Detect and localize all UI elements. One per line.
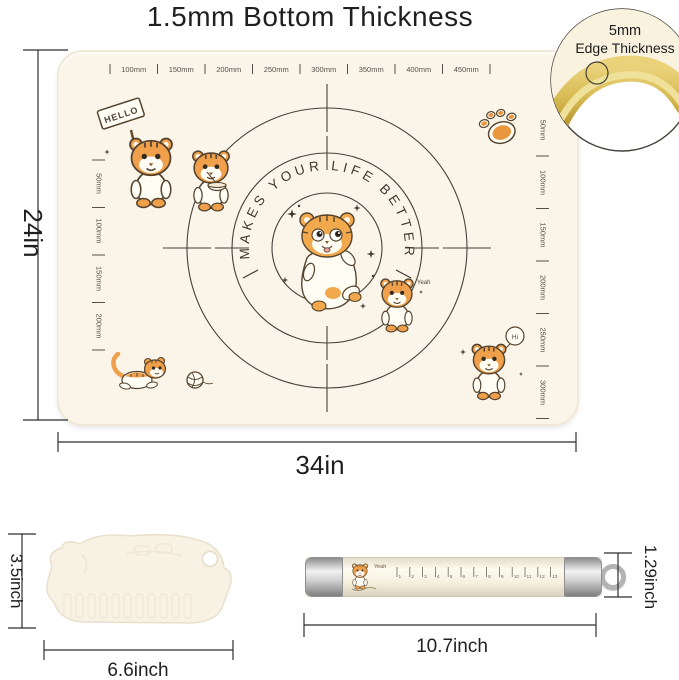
- svg-text:12: 12: [539, 574, 545, 580]
- mat-right-ruler-labels: 50mm 100mm 150mm 200mm 250mm 300mm: [539, 120, 548, 405]
- paw-print-icon: [477, 105, 523, 149]
- hello-tiger: HELLO: [97, 98, 172, 208]
- svg-text:10: 10: [514, 574, 520, 580]
- mat-top-ruler: [110, 64, 490, 74]
- svg-text:200mm: 200mm: [539, 275, 548, 300]
- edge-thickness-inset: 5mm Edge Thickness: [545, 5, 679, 155]
- svg-text:2: 2: [411, 574, 414, 580]
- svg-text:150mm: 150mm: [539, 222, 548, 247]
- svg-text:100mm: 100mm: [121, 65, 146, 74]
- pin-height-label: 1.29inch: [641, 545, 660, 609]
- svg-text:4: 4: [437, 574, 440, 580]
- scraper-width-label: 6.6inch: [107, 660, 168, 680]
- rolling-pin-decal: Yeah: [346, 558, 394, 594]
- svg-text:100mm: 100mm: [95, 218, 104, 243]
- mat-print: 100mm150mm 200mm250mm 300mm350mm 400mm45…: [59, 52, 577, 424]
- svg-text:9: 9: [501, 574, 504, 580]
- svg-text:450mm: 450mm: [454, 65, 479, 74]
- hi-tiger: Hi: [460, 327, 524, 400]
- scraper-height-label: 3.5inch: [7, 554, 26, 609]
- svg-text:7: 7: [475, 574, 478, 580]
- svg-text:350mm: 350mm: [359, 65, 384, 74]
- pastry-mat: 100mm150mm 200mm250mm 300mm350mm 400mm45…: [57, 50, 579, 426]
- svg-text:150mm: 150mm: [95, 266, 104, 291]
- svg-text:150mm: 150mm: [169, 65, 194, 74]
- svg-text:250mm: 250mm: [539, 327, 548, 352]
- pin-length-label: 10.7inch: [416, 636, 488, 657]
- mat-width-label: 34in: [295, 450, 344, 480]
- svg-text:13: 13: [552, 574, 558, 580]
- svg-text:8: 8: [488, 574, 491, 580]
- svg-text:11: 11: [527, 574, 532, 580]
- svg-text:1: 1: [399, 574, 402, 580]
- page-title: 1.5mm Bottom Thickness: [100, 1, 520, 33]
- running-tiger: [113, 354, 165, 390]
- svg-text:200mm: 200mm: [216, 65, 241, 74]
- yeah-text: Yeah: [417, 280, 430, 286]
- mat-left-ruler-labels: 50mm 100mm 150mm 200mm: [95, 173, 104, 338]
- svg-text:3: 3: [424, 574, 427, 580]
- rolling-pin-ring: [600, 564, 626, 590]
- svg-text:200mm: 200mm: [95, 313, 104, 338]
- noodle-tiger: [193, 151, 229, 211]
- decal-text: Yeah: [374, 564, 386, 570]
- center-tiger: [282, 204, 376, 311]
- svg-text:400mm: 400mm: [406, 65, 431, 74]
- scraper-hole: [203, 552, 218, 567]
- svg-text:300mm: 300mm: [311, 65, 336, 74]
- rolling-pin-ruler: 12 34 56 78 910 1112 13: [393, 561, 561, 589]
- svg-text:6: 6: [463, 574, 466, 580]
- hi-text: Hi: [512, 334, 518, 341]
- scraper-body: [47, 535, 231, 623]
- svg-text:100mm: 100mm: [539, 170, 548, 195]
- yeah-tiger: Yeah: [381, 279, 431, 332]
- svg-text:300mm: 300mm: [539, 380, 548, 405]
- svg-text:5: 5: [450, 574, 453, 580]
- dough-scraper: [38, 528, 242, 637]
- rolling-pin-cap-left: [305, 557, 343, 597]
- yarn-ball: [187, 372, 213, 388]
- edge-thickness-value: 5mm: [609, 23, 641, 39]
- mat-height-label: 24in: [18, 208, 48, 257]
- svg-text:50mm: 50mm: [95, 173, 104, 194]
- rolling-pin-cap-right: [564, 557, 602, 597]
- svg-text:250mm: 250mm: [264, 65, 289, 74]
- edge-thickness-label: Edge Thickness: [575, 40, 674, 56]
